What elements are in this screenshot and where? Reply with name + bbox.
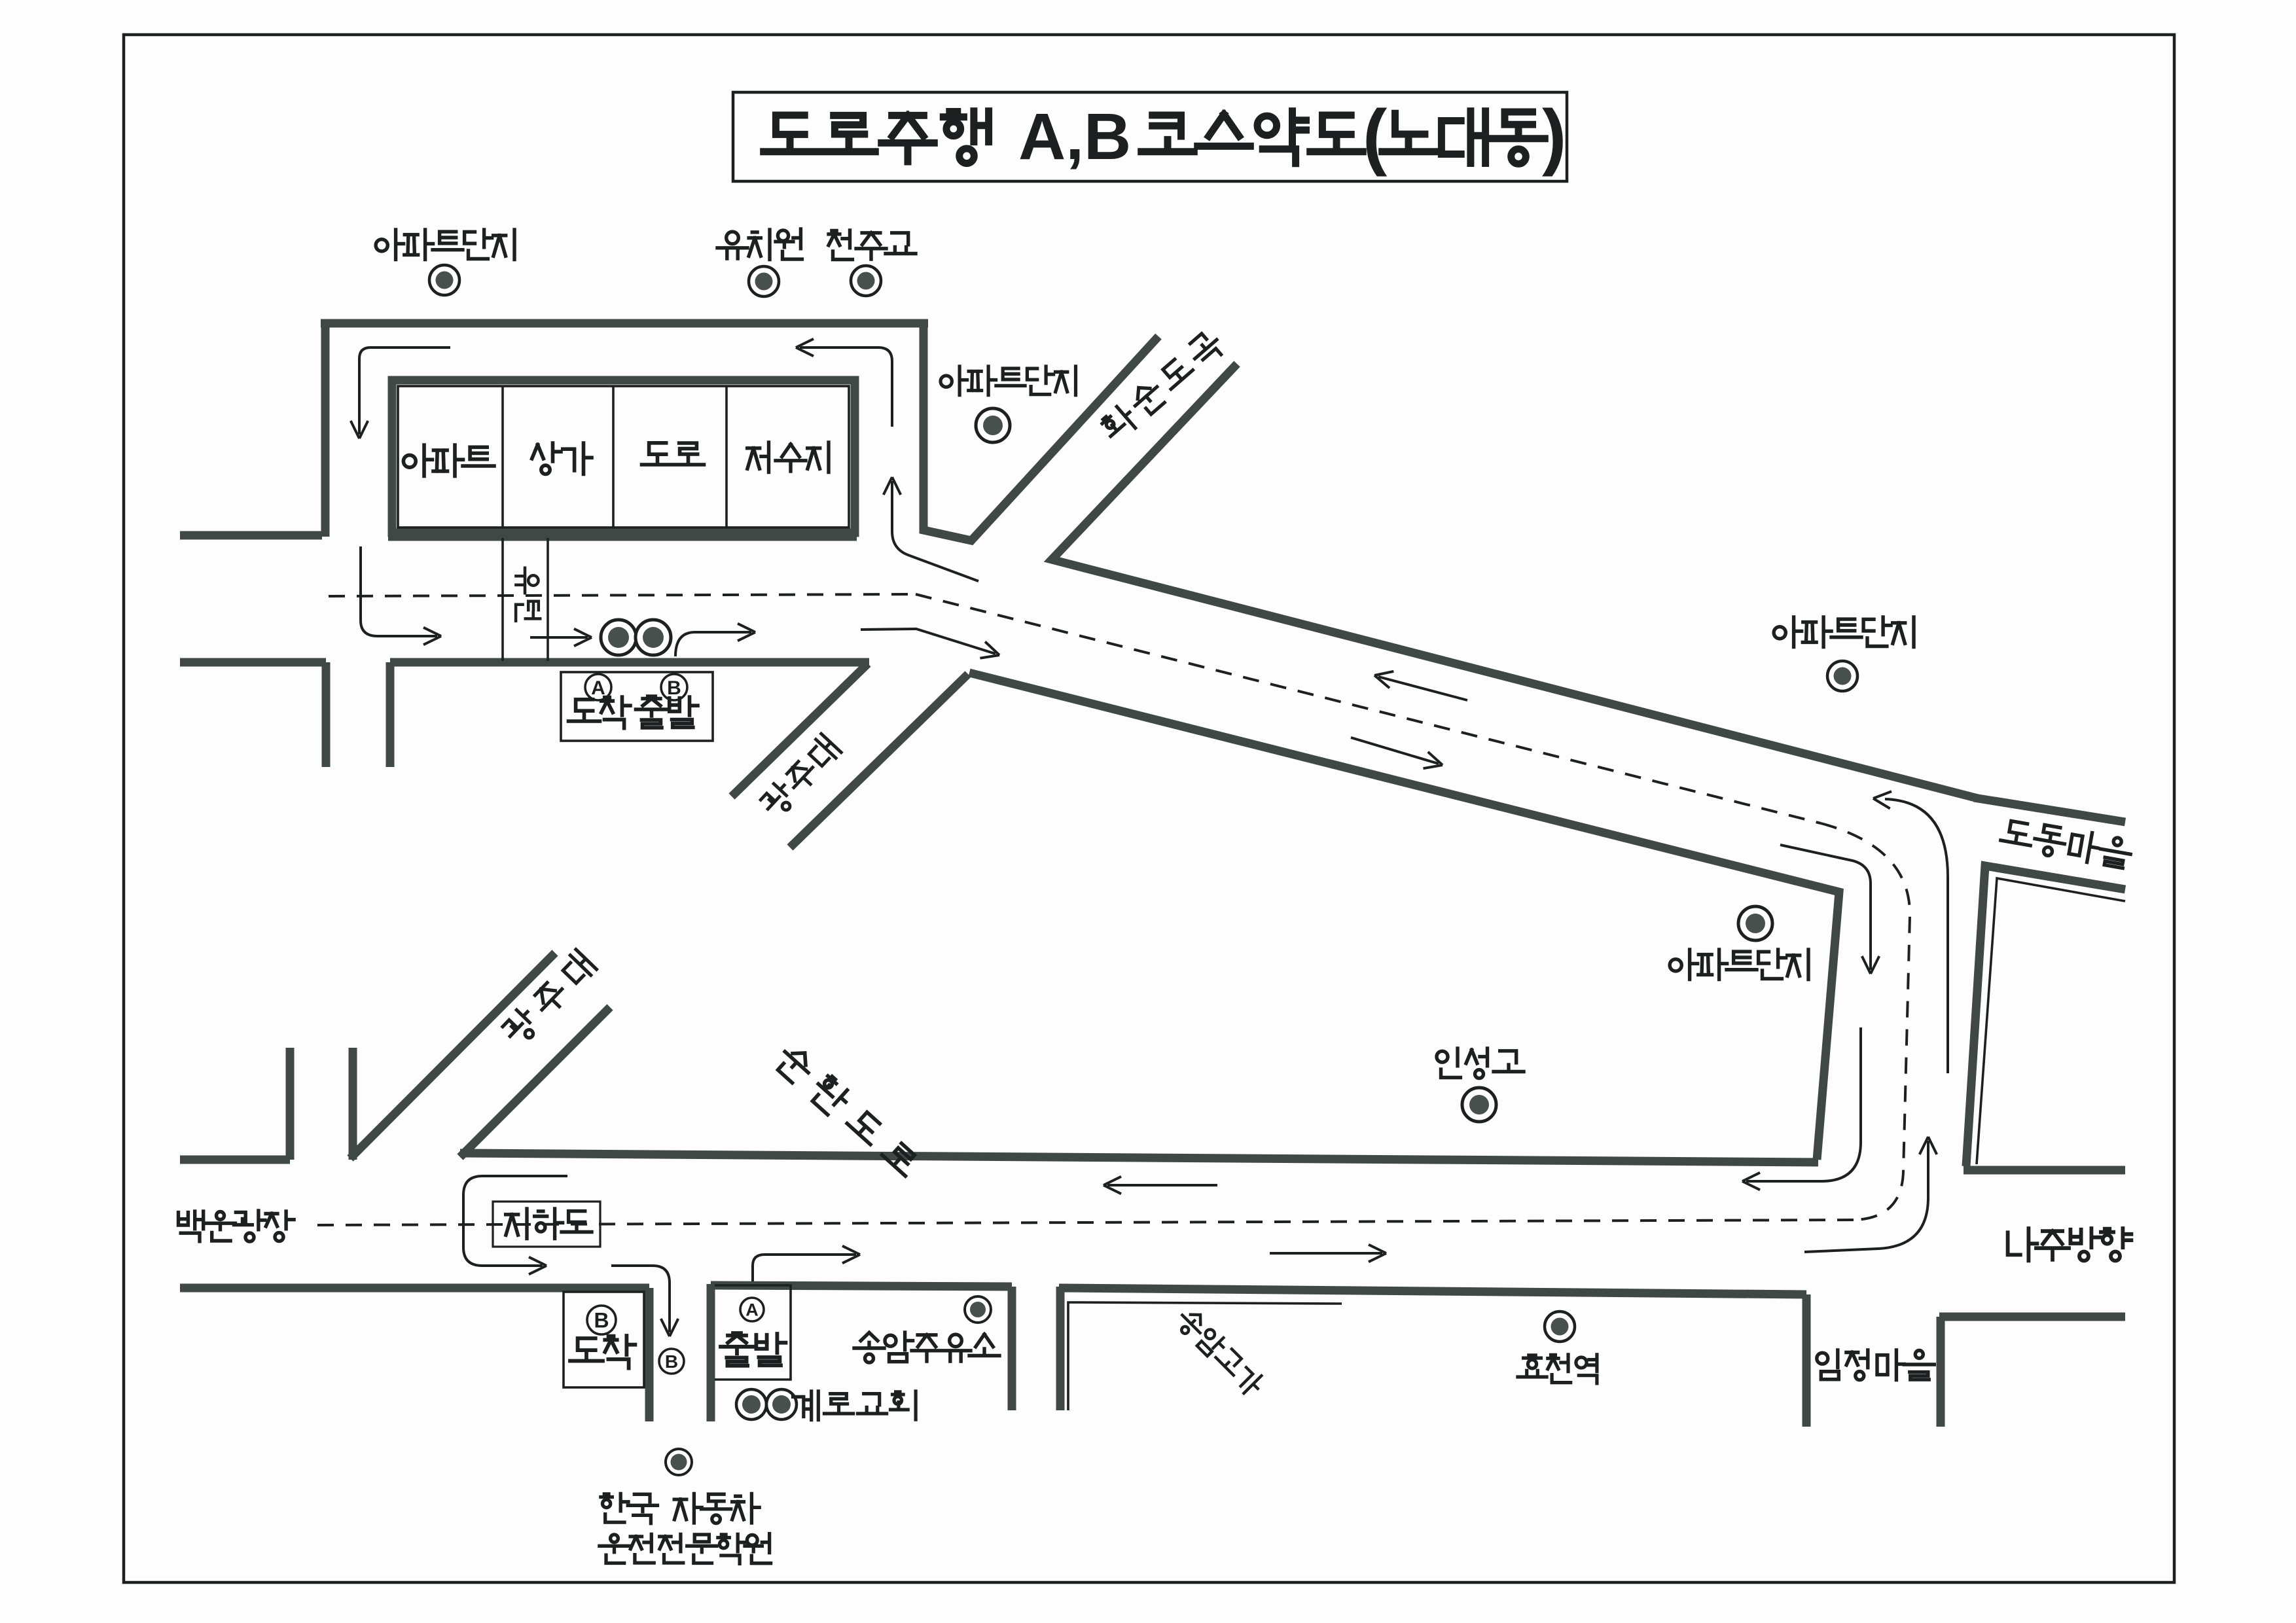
svg-text:(: ( <box>1363 95 1388 177</box>
svg-text:B: B <box>594 1309 609 1332</box>
svg-text:B: B <box>665 1351 678 1372</box>
svg-text:A: A <box>745 1300 759 1320</box>
svg-text:A,B: A,B <box>1018 100 1131 173</box>
svg-text:): ) <box>1542 95 1566 177</box>
svg-text:B: B <box>667 677 681 699</box>
